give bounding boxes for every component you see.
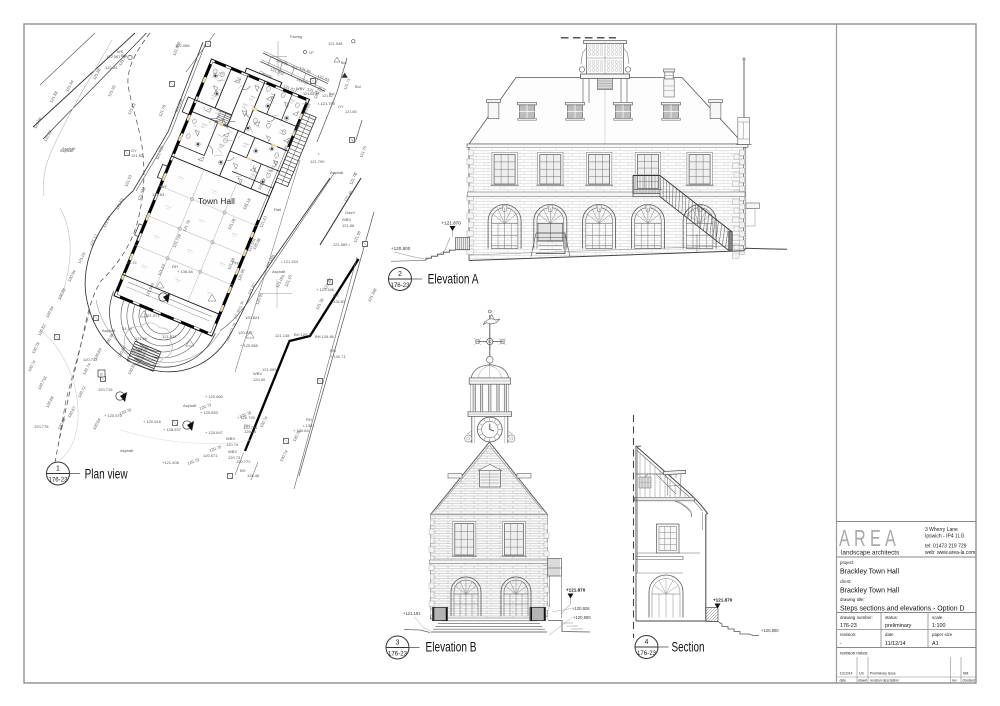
svg-text:121.62: 121.62 [322,94,333,98]
svg-text:121.56: 121.56 [342,223,355,228]
svg-text:Section: Section [672,640,705,655]
svg-text:Bol: Bol [341,61,347,65]
svg-text:120.778: 120.778 [34,424,49,429]
svg-text:121.83: 121.83 [131,153,144,158]
svg-text:+121.870: +121.870 [442,221,462,226]
svg-text:+ 1: + 1 [351,138,357,143]
svg-text:+ 120.660: + 120.660 [205,394,224,399]
svg-text:+ 120.653: + 120.653 [200,410,219,415]
svg-text:1:100: 1:100 [932,623,946,629]
svg-text:+121.408: +121.408 [162,460,180,465]
svg-text:revision description: revision description [870,679,899,683]
svg-text:121.63: 121.63 [152,192,165,197]
svg-text:130.53: 130.53 [130,348,143,353]
svg-text:GY: GY [338,105,344,109]
svg-text:121.948: 121.948 [328,41,343,46]
svg-text:RH: RH [330,348,336,353]
svg-text:preliminary: preliminary [885,623,912,629]
svg-text:121.50: 121.50 [135,336,148,341]
svg-text:11/12/14: 11/12/14 [885,641,906,647]
svg-text:AREA: AREA [839,525,900,551]
svg-text:web: www.area-la.com: web: www.area-la.com [925,550,975,556]
svg-text:BH: BH [240,468,246,473]
svg-text:120.912: 120.912 [238,330,253,335]
svg-text:120.73: 120.73 [228,455,241,460]
svg-text:GasV: GasV [345,210,355,215]
svg-text:+120,800: +120,800 [761,628,779,633]
svg-text:paper size: paper size [932,632,953,637]
svg-text:US: US [859,672,864,676]
svg-text:1: 1 [56,466,60,473]
svg-text:2: 2 [398,271,402,278]
svg-text:176-23: 176-23 [840,623,857,629]
svg-text:Brackley Town Hall: Brackley Town Hall [840,569,899,576]
svg-text:date: date [840,679,847,683]
svg-text:Ipswich - IP4 1LG: Ipswich - IP4 1LG [925,534,965,540]
svg-text:checked: checked [963,679,976,683]
svg-text:176-23: 176-23 [637,650,657,657]
svg-text:BH: BH [333,293,339,298]
svg-text:Elevation B: Elevation B [426,640,477,655]
svg-text:LP: LP [309,51,314,55]
svg-text:21.19: 21.19 [127,261,137,265]
svg-text:4: 4 [645,639,649,646]
svg-text:WBV: WBV [226,436,235,441]
svg-text:Paving: Paving [290,34,302,39]
svg-text:+ 120.516: + 120.516 [143,419,162,424]
svg-text:Steps sections and elevations: Steps sections and elevations - Option D [840,606,965,613]
svg-text:121.790: 121.790 [310,159,325,164]
svg-text:122.04: 122.04 [105,65,118,70]
svg-text:Brackley Town Hall: Brackley Town Hall [840,588,899,595]
svg-text:+121.191: +121.191 [403,611,421,616]
svg-text:WS: WS [117,49,124,54]
svg-text:landscape architects: landscape architects [841,550,899,557]
svg-text:121.565 •: 121.565 • [333,242,351,247]
svg-text:120.74: 120.74 [226,442,239,447]
svg-text:+120,800: +120,800 [391,246,411,251]
svg-text:WBV: WBV [342,217,351,222]
svg-text:+121.870: +121.870 [713,598,733,603]
svg-text:121.138: 121.138 [275,333,290,338]
svg-text:-: - [954,672,955,676]
svg-text:NM: NM [963,672,968,676]
svg-text:120.824: 120.824 [245,315,260,320]
svg-text:-: - [840,641,842,647]
svg-text:GtY: GtY [160,184,167,189]
svg-text:tel: 01473 219 729: tel: 01473 219 729 [925,544,967,550]
svg-text:+ 130.71: + 130.71 [330,354,346,359]
svg-text:WBV: WBV [228,449,237,454]
svg-text:11/12/14: 11/12/14 [840,672,853,676]
svg-text:revision:: revision: [840,632,856,637]
svg-text:drawn: drawn [858,679,867,683]
svg-text:120.715: 120.715 [98,387,113,392]
svg-text:126.46: 126.46 [247,473,260,478]
svg-text:176-23: 176-23 [391,282,411,289]
svg-text:126.83: 126.83 [333,299,346,304]
svg-text:WBV: WBV [253,371,262,376]
svg-text:project:: project: [840,560,854,565]
svg-text:RH: RH [306,417,312,422]
svg-text:Asphalt: Asphalt [60,148,74,153]
svg-text:121.65: 121.65 [345,110,357,114]
svg-text:+120,800: +120,800 [573,615,591,620]
svg-text:Asphalt: Asphalt [183,403,197,408]
svg-text:revision notes:: revision notes: [840,651,868,656]
svg-text:Asphalt: Asphalt [120,448,134,453]
svg-text:+ 120.647: + 120.647 [205,430,224,435]
svg-text:drawing number:: drawing number: [840,615,873,620]
svg-text:121.073: 121.073 [145,313,160,318]
svg-text:drawing title:: drawing title: [840,597,865,602]
svg-text:176-23: 176-23 [49,477,69,484]
svg-text:3 Wherry Lane: 3 Wherry Lane [925,527,958,533]
svg-text:client:: client: [840,579,851,584]
svg-text:date: date [885,632,894,637]
svg-text:120.571: 120.571 [203,453,218,458]
svg-text:3: 3 [396,640,400,647]
svg-text:Elevation A: Elevation A [428,272,479,287]
svg-text:Rail: Rail [274,207,281,212]
svg-text:status:: status: [885,615,898,620]
svg-text:• 121.163: • 121.163 [281,259,299,264]
svg-text:122.058: 122.058 [175,43,190,48]
svg-text:21.19: 21.19 [122,326,133,331]
svg-text:Asphalt: Asphalt [330,170,344,175]
svg-text:121.009: 121.009 [262,367,277,372]
svg-text:A1: A1 [932,641,939,647]
svg-text:+121.870: +121.870 [566,588,586,593]
svg-text:+ 120.965: + 120.965 [240,343,259,348]
svg-text:+120.926: +120.926 [572,606,590,611]
svg-text:BH 126.86: BH 126.86 [315,334,335,339]
svg-text:120.90: 120.90 [253,377,266,382]
svg-text:+ 136.48: + 136.48 [177,269,193,274]
svg-text:Bol: Bol [355,84,361,89]
svg-text:121.022: 121.022 [162,334,177,339]
svg-text:WBV: WBV [296,87,305,91]
svg-text:• 121.790: • 121.790 [318,101,336,106]
svg-text:rev: rev [952,679,957,683]
svg-text:176-23: 176-23 [388,651,408,658]
svg-text:Asphalt: Asphalt [272,269,286,274]
svg-text:scale: scale [932,615,943,620]
svg-text:120.771: 120.771 [243,425,258,430]
svg-text:Preliminary issue: Preliminary issue [870,672,896,676]
svg-text:Plan view: Plan view [85,467,128,482]
svg-text:Asphalt: Asphalt [102,328,116,333]
svg-text:Town Hall: Town Hall [198,196,235,206]
svg-text:122.067: 122.067 [106,54,121,59]
svg-text:BH 126.37: BH 126.37 [294,332,314,337]
svg-text:+ 130.64: + 130.64 [293,428,309,433]
svg-text:+ 128.537: + 128.537 [163,427,182,432]
